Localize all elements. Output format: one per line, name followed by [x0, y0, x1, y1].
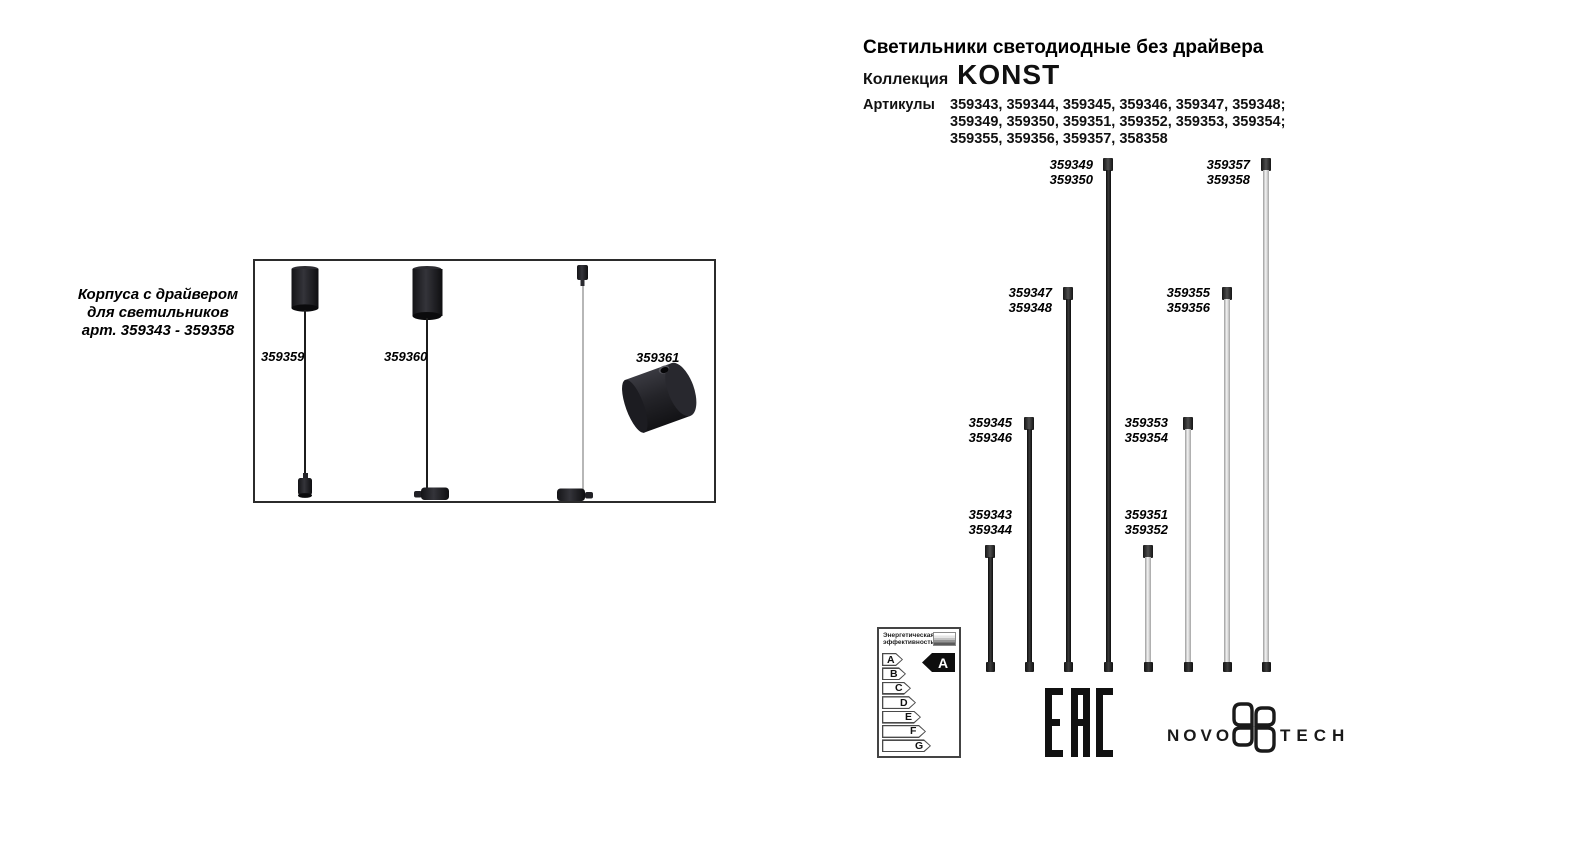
- article-number: 359351: [1098, 507, 1168, 522]
- suspension-cable-thin: [582, 286, 584, 489]
- energy-label-title: Энергетическая эффективность: [883, 632, 935, 646]
- tube-bottom-cap: [1104, 662, 1113, 672]
- energy-class-letter: F: [910, 725, 916, 737]
- articles-label: Артикулы: [863, 97, 950, 148]
- tube-articles-label: 359343359344: [942, 507, 1012, 537]
- caption-line: для светильников: [58, 304, 258, 322]
- tube-articles-label: 359357359358: [1180, 157, 1250, 187]
- product-label: 359361: [636, 350, 679, 365]
- articles-list: 359343, 359344, 359345, 359346, 359347, …: [950, 97, 1285, 148]
- tube-articles-label: 359353359354: [1098, 415, 1168, 445]
- energy-rating-arrow: A: [922, 653, 955, 672]
- arrow-fill: [883, 726, 924, 736]
- tube-light-359355: [1224, 299, 1230, 663]
- drum-housing-359361: [620, 354, 706, 438]
- tube-bottom-cap: [1144, 662, 1153, 672]
- mini-canopy: [576, 265, 589, 288]
- article-number: 359357: [1180, 157, 1250, 172]
- brand-name-novo: NOVO: [1167, 726, 1233, 746]
- novotech-clover-icon: [1230, 700, 1278, 755]
- article-number: 359343: [942, 507, 1012, 522]
- collection-row: Коллекция KONST: [863, 59, 1060, 91]
- energy-title-line: Энергетическая: [883, 632, 935, 639]
- article-number: 359345: [942, 415, 1012, 430]
- catalog-sheet: { "header": { "title": "Светильники свет…: [0, 0, 1587, 858]
- suspension-cable: [426, 318, 428, 488]
- tube-light-359357: [1263, 170, 1269, 663]
- article-number: 359350: [1023, 172, 1093, 187]
- energy-scale-strip: [933, 632, 956, 646]
- tube-light-359353: [1185, 429, 1191, 663]
- tube-bottom-cap: [1064, 662, 1073, 672]
- arrow-outline: [882, 711, 921, 724]
- collection-label: Коллекция: [863, 71, 948, 89]
- article-number: 359353: [1098, 415, 1168, 430]
- article-number: 359352: [1098, 522, 1168, 537]
- tube-light-359343: [988, 557, 993, 663]
- caption-line: арт. 359343 - 359358: [58, 322, 258, 340]
- articles-line: 359343, 359344, 359345, 359346, 359347, …: [950, 97, 1285, 114]
- eac-certification-logo: [1045, 688, 1113, 757]
- article-number: 359358: [1180, 172, 1250, 187]
- collection-name: KONST: [957, 59, 1060, 91]
- energy-rating-letter: A: [929, 655, 948, 671]
- tube-light-359351: [1145, 557, 1151, 663]
- energy-class-letter: D: [900, 697, 908, 709]
- tube-bottom-cap: [1223, 662, 1232, 672]
- pendant-canopy-359360: [412, 266, 443, 322]
- energy-class-letter: A: [887, 654, 895, 666]
- cable-end-connector: [557, 487, 595, 503]
- energy-class-letter: B: [890, 668, 898, 680]
- energy-class-letter: C: [895, 682, 903, 694]
- tube-bottom-cap: [1025, 662, 1034, 672]
- suspension-cable: [304, 310, 306, 478]
- energy-class-letter: E: [905, 711, 912, 723]
- article-number: 359355: [1140, 285, 1210, 300]
- tube-light-359345: [1027, 429, 1032, 663]
- arrow-outline: [882, 696, 916, 709]
- tube-articles-label: 359351359352: [1098, 507, 1168, 537]
- articles-block: Артикулы 359343, 359344, 359345, 359346,…: [863, 97, 1285, 148]
- pendant-canopy-359359: [291, 266, 319, 313]
- tube-bottom-cap: [986, 662, 995, 672]
- tube-articles-label: 359349359350: [1023, 157, 1093, 187]
- article-number: 359356: [1140, 300, 1210, 315]
- cable-end-connector: [414, 486, 452, 502]
- energy-class-letter: G: [915, 740, 923, 752]
- tube-articles-label: 359355359356: [1140, 285, 1210, 315]
- tube-articles-label: 359345359346: [942, 415, 1012, 445]
- arrow-fill: [883, 697, 914, 707]
- tube-bottom-cap: [1184, 662, 1193, 672]
- brand-name-tech: TECH: [1280, 726, 1350, 746]
- tube-articles-label: 359347359348: [982, 285, 1052, 315]
- articles-line: 359349, 359350, 359351, 359352, 359353, …: [950, 114, 1285, 131]
- page-title: Светильники светодиодные без драйвера: [863, 37, 1263, 59]
- tube-light-359347: [1066, 299, 1071, 663]
- arrow-outline: [882, 725, 926, 738]
- article-number: 359354: [1098, 430, 1168, 445]
- article-number: 359348: [982, 300, 1052, 315]
- tube-bottom-cap: [1262, 662, 1271, 672]
- energy-efficiency-label: Энергетическая эффективность ABCDEFG A: [877, 627, 961, 758]
- article-number: 359349: [1023, 157, 1093, 172]
- article-number: 359344: [942, 522, 1012, 537]
- arrow-outline: [882, 739, 931, 752]
- cable-end-connector: [297, 473, 314, 499]
- energy-title-line: эффективность: [883, 639, 935, 646]
- product-label: 359359: [261, 349, 304, 364]
- article-number: 359347: [982, 285, 1052, 300]
- caption-line: Корпуса с драйвером: [58, 286, 258, 304]
- arrow-fill: [883, 712, 919, 722]
- driver-housings-caption: Корпуса с драйвером для светильников арт…: [58, 286, 258, 340]
- product-label: 359360: [384, 349, 427, 364]
- article-number: 359346: [942, 430, 1012, 445]
- articles-line: 359355, 359356, 359357, 358358: [950, 131, 1285, 148]
